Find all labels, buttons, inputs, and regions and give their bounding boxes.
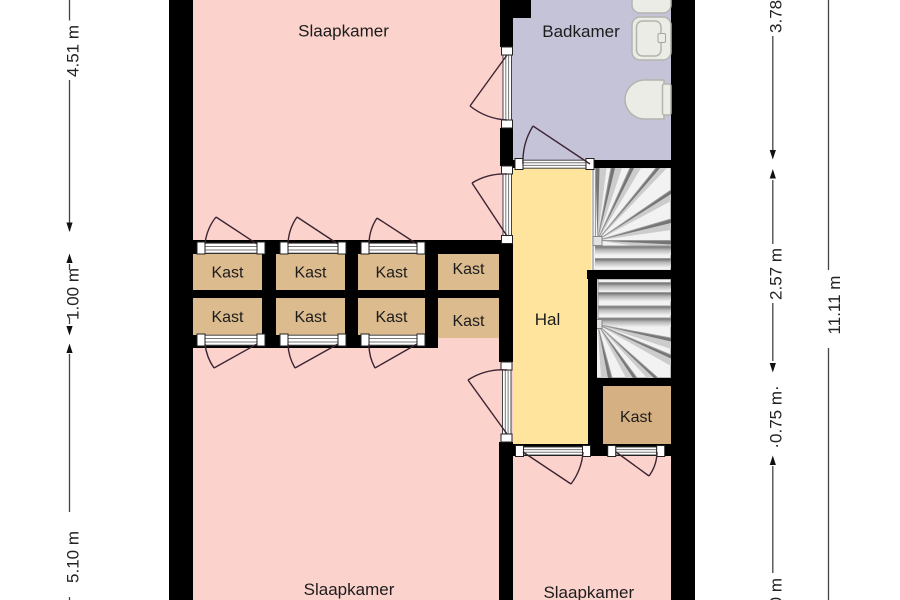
svg-text:Kast: Kast (211, 309, 244, 326)
svg-text:Kast: Kast (211, 265, 244, 282)
svg-text:Slaapkamer: Slaapkamer (298, 22, 389, 41)
svg-text:1.00 m: 1.00 m (63, 268, 82, 320)
svg-text:Hal: Hal (535, 310, 561, 329)
svg-text:2.57 m: 2.57 m (766, 248, 785, 300)
svg-text:Kast: Kast (294, 309, 327, 326)
svg-text:Kast: Kast (294, 265, 327, 282)
svg-text:3.78 m: 3.78 m (766, 0, 785, 33)
svg-text:Kast: Kast (620, 409, 653, 426)
svg-text:4.51 m: 4.51 m (63, 25, 82, 77)
svg-text:Kast: Kast (375, 309, 408, 326)
svg-text:Kast: Kast (452, 313, 485, 330)
svg-text:Badkamer: Badkamer (542, 22, 620, 41)
svg-text:Slaapkamer: Slaapkamer (304, 580, 395, 599)
svg-text:11.11 m: 11.11 m (825, 276, 844, 335)
svg-text:Kast: Kast (452, 261, 485, 278)
svg-text:5.10 m: 5.10 m (63, 531, 82, 583)
svg-text:5.20 m: 5.20 m (766, 578, 785, 600)
svg-text:·0.75 m·: ·0.75 m· (766, 385, 785, 448)
svg-text:Kast: Kast (375, 265, 408, 282)
svg-text:Slaapkamer: Slaapkamer (543, 583, 634, 600)
